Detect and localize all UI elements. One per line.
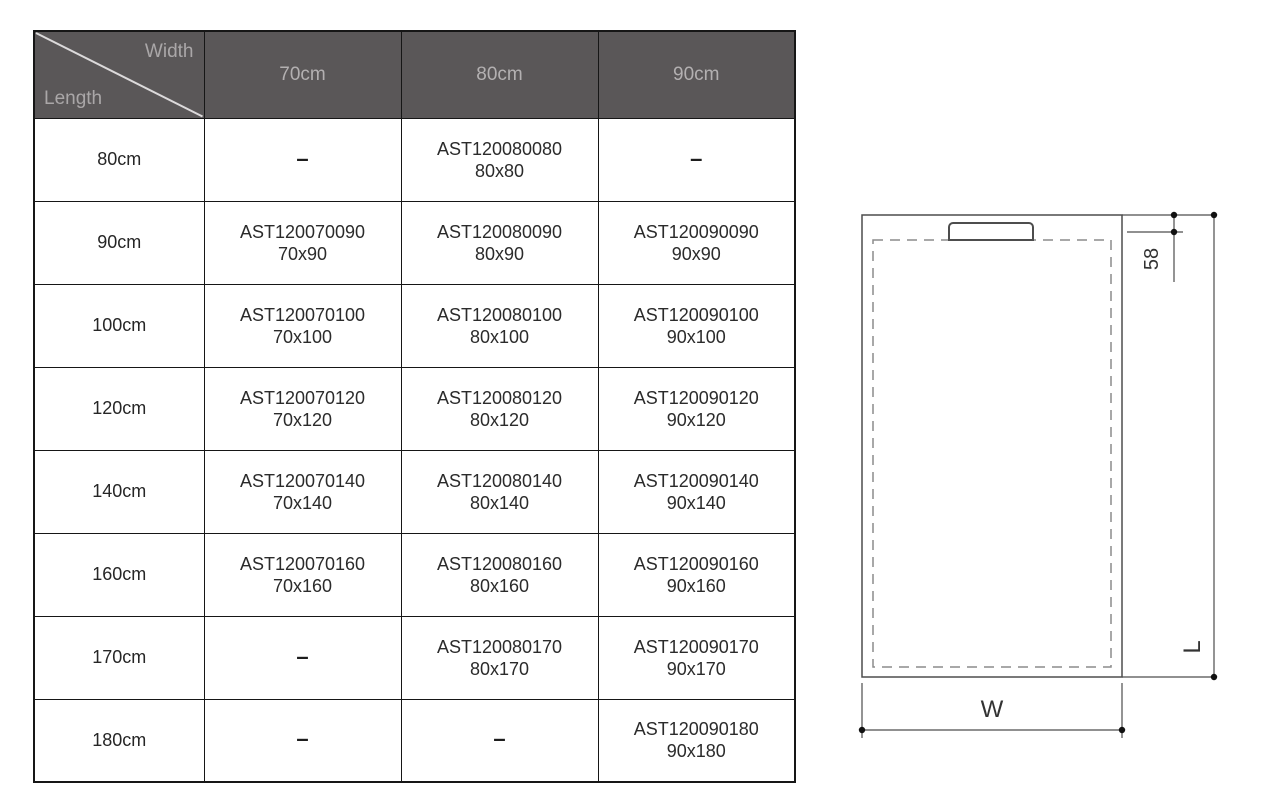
product-code: AST120080080	[402, 138, 598, 160]
catalog-page: Width Length 70cm 80cm 90cm 80cm–AST1200…	[0, 0, 1264, 802]
dim-58-label: 58	[1141, 248, 1163, 270]
no-product-dash: –	[493, 726, 505, 751]
table-row: 80cm–AST12008008080x80–	[34, 118, 795, 201]
corner-header-cell: Width Length	[34, 31, 204, 118]
product-code: AST120070100	[205, 304, 401, 326]
product-code: AST120070160	[205, 553, 401, 575]
product-code-cell: AST12007009070x90	[204, 201, 401, 284]
dim-dot	[1119, 727, 1125, 733]
product-size: 70x160	[205, 575, 401, 597]
dim-dot	[859, 727, 865, 733]
product-size: 90x170	[599, 658, 795, 680]
row-length-label: 180cm	[34, 699, 204, 782]
product-size: 90x180	[599, 740, 795, 762]
table-row: 160cmAST12007016070x160AST12008016080x16…	[34, 533, 795, 616]
size-code-table: Width Length 70cm 80cm 90cm 80cm–AST1200…	[33, 30, 796, 783]
product-code: AST120090120	[599, 387, 795, 409]
dim-dot	[1171, 212, 1177, 218]
tray-diagram: 58 L W	[840, 195, 1264, 755]
dim-L-label: L	[1179, 640, 1206, 653]
empty-cell: –	[204, 616, 401, 699]
product-code: AST120080120	[402, 387, 598, 409]
product-size: 70x90	[205, 243, 401, 265]
column-header-70cm: 70cm	[204, 31, 401, 118]
product-size: 80x140	[402, 492, 598, 514]
drain-cover	[949, 223, 1033, 240]
empty-cell: –	[204, 699, 401, 782]
product-code-cell: AST12007016070x160	[204, 533, 401, 616]
width-axis-label: Width	[145, 41, 194, 63]
product-code: AST120070140	[205, 470, 401, 492]
row-length-label: 80cm	[34, 118, 204, 201]
row-length-label: 160cm	[34, 533, 204, 616]
dim-W-label: W	[981, 696, 1004, 723]
product-size: 70x120	[205, 409, 401, 431]
product-code: AST120070090	[205, 221, 401, 243]
product-size: 90x160	[599, 575, 795, 597]
product-code-cell: AST12008017080x170	[401, 616, 598, 699]
product-code-cell: AST12009014090x140	[598, 450, 795, 533]
product-code-cell: AST12009012090x120	[598, 367, 795, 450]
product-code: AST120090180	[599, 718, 795, 740]
row-length-label: 90cm	[34, 201, 204, 284]
table-row: 180cm––AST12009018090x180	[34, 699, 795, 782]
product-size: 70x100	[205, 326, 401, 348]
table-row: 90cmAST12007009070x90AST12008009080x90AS…	[34, 201, 795, 284]
no-product-dash: –	[690, 146, 702, 171]
row-length-label: 120cm	[34, 367, 204, 450]
product-size: 80x170	[402, 658, 598, 680]
length-axis-label: Length	[44, 88, 102, 110]
product-code-cell: AST12008016080x160	[401, 533, 598, 616]
empty-cell: –	[401, 699, 598, 782]
product-size: 90x140	[599, 492, 795, 514]
product-code: AST120080160	[402, 553, 598, 575]
product-size: 70x140	[205, 492, 401, 514]
product-code-cell: AST12009010090x100	[598, 284, 795, 367]
row-length-label: 140cm	[34, 450, 204, 533]
product-code: AST120080170	[402, 636, 598, 658]
product-code-cell: AST12008008080x80	[401, 118, 598, 201]
product-size: 80x90	[402, 243, 598, 265]
product-size: 90x120	[599, 409, 795, 431]
product-code-cell: AST12007014070x140	[204, 450, 401, 533]
product-code-cell: AST12009018090x180	[598, 699, 795, 782]
product-code-cell: AST12009016090x160	[598, 533, 795, 616]
product-code-cell: AST12008012080x120	[401, 367, 598, 450]
product-size: 80x160	[402, 575, 598, 597]
product-size: 90x90	[599, 243, 795, 265]
product-code: AST120080090	[402, 221, 598, 243]
product-size: 80x80	[402, 160, 598, 182]
product-code-cell: AST12008014080x140	[401, 450, 598, 533]
no-product-dash: –	[296, 726, 308, 751]
product-size: 90x100	[599, 326, 795, 348]
column-header-80cm: 80cm	[401, 31, 598, 118]
product-code: AST120090140	[599, 470, 795, 492]
product-code: AST120090170	[599, 636, 795, 658]
row-length-label: 100cm	[34, 284, 204, 367]
product-code: AST120070120	[205, 387, 401, 409]
table-row: 170cm–AST12008017080x170AST12009017090x1…	[34, 616, 795, 699]
header-row: Width Length 70cm 80cm 90cm	[34, 31, 795, 118]
table-body: 80cm–AST12008008080x80–90cmAST1200700907…	[34, 118, 795, 782]
table-row: 100cmAST12007010070x100AST12008010080x10…	[34, 284, 795, 367]
no-product-dash: –	[296, 644, 308, 669]
dim-dot	[1211, 674, 1217, 680]
dim-dot	[1211, 212, 1217, 218]
product-code-cell: AST12007010070x100	[204, 284, 401, 367]
dim-dot	[1171, 229, 1177, 235]
table-row: 140cmAST12007014070x140AST12008014080x14…	[34, 450, 795, 533]
tray-inner-dashed-outline	[873, 240, 1111, 667]
empty-cell: –	[204, 118, 401, 201]
product-size: 80x120	[402, 409, 598, 431]
row-length-label: 170cm	[34, 616, 204, 699]
product-code: AST120090090	[599, 221, 795, 243]
product-code-cell: AST12008009080x90	[401, 201, 598, 284]
column-header-90cm: 90cm	[598, 31, 795, 118]
product-code-cell: AST12009017090x170	[598, 616, 795, 699]
table-row: 120cmAST12007012070x120AST12008012080x12…	[34, 367, 795, 450]
product-code: AST120090100	[599, 304, 795, 326]
empty-cell: –	[598, 118, 795, 201]
product-code: AST120090160	[599, 553, 795, 575]
product-code: AST120080100	[402, 304, 598, 326]
product-code-cell: AST12007012070x120	[204, 367, 401, 450]
product-size: 80x100	[402, 326, 598, 348]
no-product-dash: –	[296, 146, 308, 171]
product-code-cell: AST12008010080x100	[401, 284, 598, 367]
tray-outer-outline	[862, 215, 1122, 677]
product-code-cell: AST12009009090x90	[598, 201, 795, 284]
product-code: AST120080140	[402, 470, 598, 492]
